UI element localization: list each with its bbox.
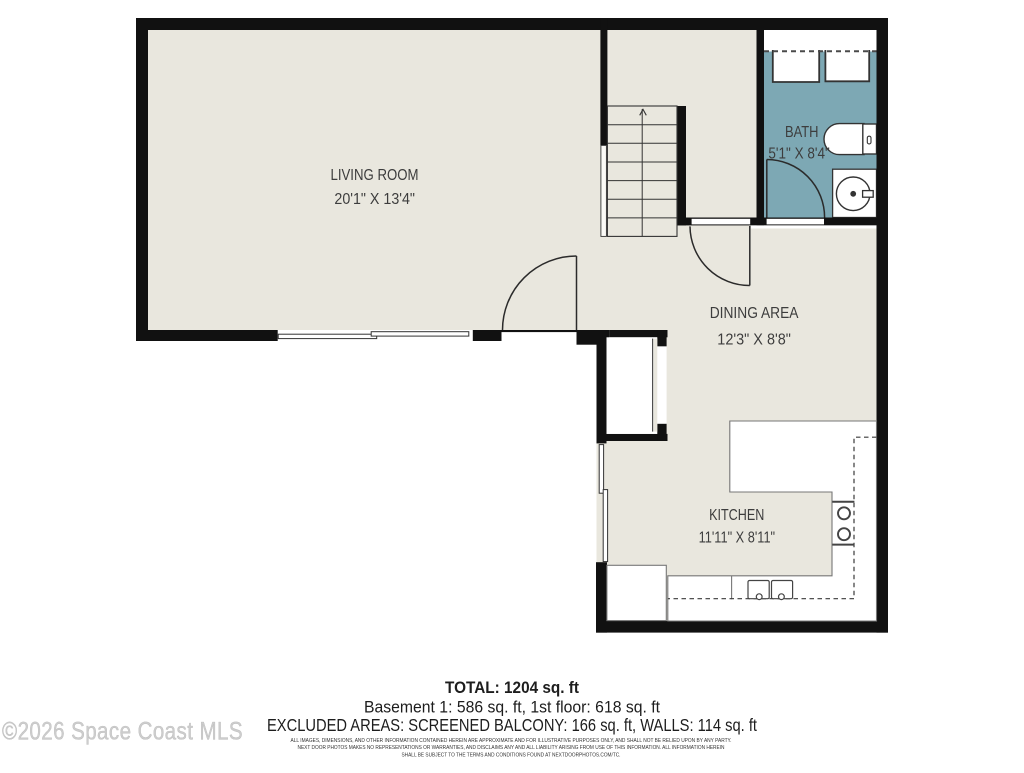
svg-text:DINING AREA: DINING AREA [710,305,799,322]
svg-text:TOTAL: 1204 sq. ft: TOTAL: 1204 sq. ft [445,678,579,697]
svg-text:20'1" X 13'4": 20'1" X 13'4" [334,191,415,208]
svg-text:11'11" X 8'11": 11'11" X 8'11" [699,530,776,547]
svg-text:©2026 Space Coast MLS: ©2026 Space Coast MLS [2,718,243,746]
svg-text:NEXT DOOR PHOTOS MAKES NO REPR: NEXT DOOR PHOTOS MAKES NO REPRESENTATION… [298,745,725,751]
svg-text:EXCLUDED AREAS: SCREENED BALCO: EXCLUDED AREAS: SCREENED BALCONY: 166 sq… [267,715,757,735]
svg-text:Basement 1: 586 sq. ft, 1st fl: Basement 1: 586 sq. ft, 1st floor: 618 s… [364,697,660,716]
svg-text:KITCHEN: KITCHEN [709,507,764,524]
svg-text:LIVING ROOM: LIVING ROOM [331,167,419,184]
svg-text:ALL IMAGES, DIMENSIONS, AND OT: ALL IMAGES, DIMENSIONS, AND OTHER INFORM… [291,738,732,744]
svg-text:5'1" X 8'4": 5'1" X 8'4" [768,145,829,162]
svg-text:BATH: BATH [785,124,819,141]
svg-text:SHALL BE SUBJECT TO THE TERMS: SHALL BE SUBJECT TO THE TERMS AND CONDIT… [402,753,621,759]
svg-text:12'3" X 8'8": 12'3" X 8'8" [717,332,791,349]
